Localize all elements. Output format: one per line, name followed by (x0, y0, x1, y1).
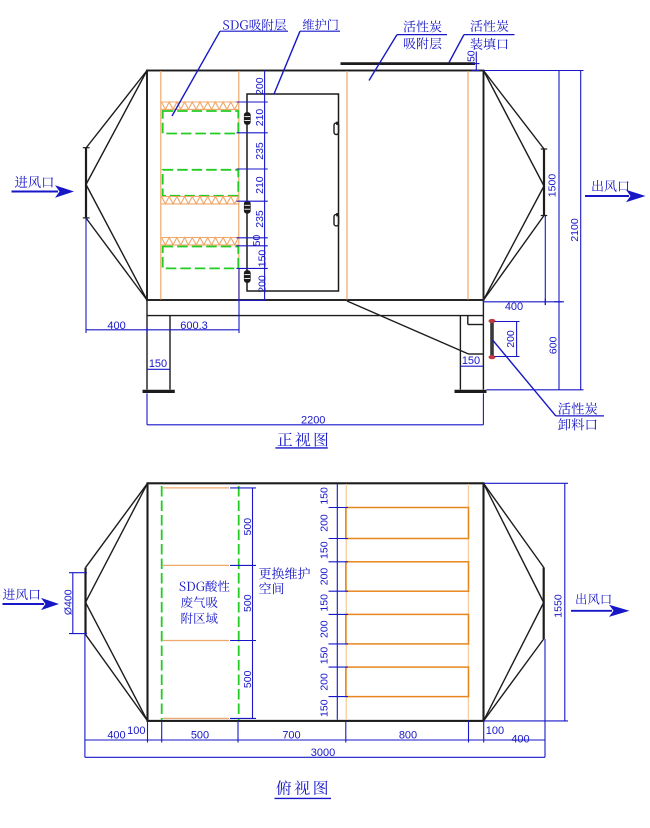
svg-text:150: 150 (318, 541, 330, 559)
svg-text:210: 210 (254, 176, 266, 194)
svg-text:200: 200 (254, 77, 266, 95)
svg-text:235: 235 (254, 210, 266, 228)
svg-text:200: 200 (256, 275, 268, 293)
svg-text:2100: 2100 (569, 218, 581, 242)
svg-text:400: 400 (511, 733, 529, 745)
svg-text:500: 500 (191, 730, 209, 742)
svg-text:100: 100 (127, 725, 145, 737)
svg-text:1550: 1550 (552, 594, 564, 618)
svg-text:500: 500 (242, 594, 254, 612)
svg-text:500: 500 (242, 518, 254, 536)
svg-text:600: 600 (547, 336, 559, 354)
svg-text:700: 700 (282, 730, 300, 742)
svg-text:2200: 2200 (301, 415, 325, 427)
svg-text:210: 210 (254, 109, 266, 127)
svg-text:3000: 3000 (311, 747, 335, 759)
svg-text:150: 150 (318, 594, 330, 612)
svg-text:1500: 1500 (546, 174, 558, 198)
svg-text:800: 800 (399, 730, 417, 742)
svg-text:150: 150 (318, 487, 330, 505)
svg-text:50: 50 (251, 235, 263, 247)
svg-text:150: 150 (318, 647, 330, 665)
svg-text:150: 150 (256, 250, 268, 268)
svg-text:400: 400 (107, 320, 125, 332)
svg-text:235: 235 (254, 142, 266, 160)
svg-text:200: 200 (318, 620, 330, 638)
svg-text:400: 400 (505, 301, 523, 313)
svg-text:200: 200 (318, 568, 330, 586)
svg-text:400: 400 (107, 730, 125, 742)
svg-text:200: 200 (505, 330, 517, 348)
svg-text:Ø400: Ø400 (63, 589, 75, 615)
svg-text:500: 500 (242, 670, 254, 688)
svg-text:150: 150 (462, 355, 480, 367)
svg-text:200: 200 (318, 514, 330, 532)
svg-text:600.3: 600.3 (180, 320, 208, 332)
svg-text:50: 50 (465, 50, 477, 62)
svg-text:200: 200 (318, 673, 330, 691)
svg-text:150: 150 (149, 358, 167, 370)
svg-text:150: 150 (318, 699, 330, 717)
svg-text:100: 100 (486, 725, 504, 737)
